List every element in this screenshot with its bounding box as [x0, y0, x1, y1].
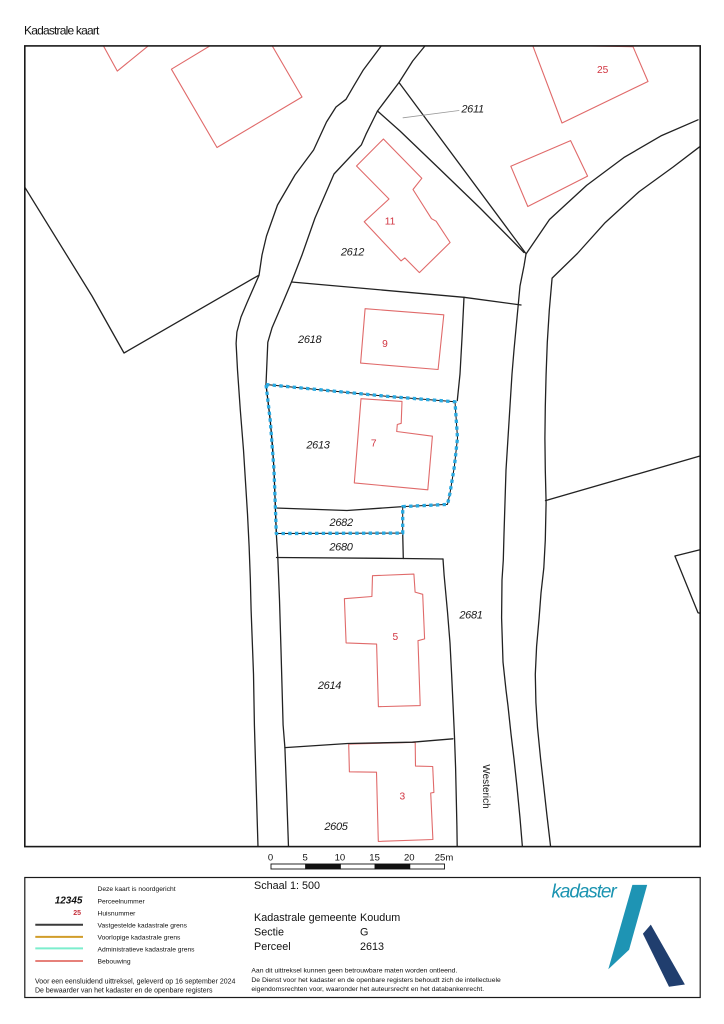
svg-text:9: 9: [382, 339, 388, 350]
svg-text:2680: 2680: [328, 542, 353, 554]
svg-text:2614: 2614: [317, 680, 341, 692]
svg-text:2682: 2682: [329, 517, 353, 529]
svg-text:Perceelnummer: Perceelnummer: [98, 898, 146, 905]
svg-text:2605: 2605: [323, 821, 348, 833]
svg-text:Kadastrale kaart: Kadastrale kaart: [24, 24, 100, 38]
svg-text:10: 10: [335, 853, 346, 864]
svg-text:Huisnummer: Huisnummer: [98, 910, 137, 917]
svg-text:2618: 2618: [297, 334, 322, 346]
svg-text:7: 7: [371, 439, 377, 450]
svg-text:Administratieve kadastrale gre: Administratieve kadastrale grens: [98, 946, 196, 953]
svg-text:Vastgestelde kadastrale grens: Vastgestelde kadastrale grens: [98, 922, 188, 929]
svg-text:Kadastrale gemeente: Kadastrale gemeente: [254, 912, 357, 924]
svg-text:2613: 2613: [305, 440, 330, 452]
svg-text:2681: 2681: [458, 610, 482, 622]
svg-text:25: 25: [73, 910, 81, 917]
svg-text:11: 11: [385, 217, 396, 228]
svg-text:G: G: [360, 927, 368, 939]
svg-text:3: 3: [399, 791, 405, 802]
svg-text:25: 25: [597, 65, 609, 76]
svg-text:20: 20: [404, 853, 415, 864]
svg-text:Schaal 1: 500: Schaal 1: 500: [254, 880, 320, 892]
svg-text:Deze kaart is noordgericht: Deze kaart is noordgericht: [98, 886, 176, 893]
svg-text:Westerich: Westerich: [480, 764, 491, 808]
svg-text:12345: 12345: [55, 895, 83, 906]
svg-text:Aan dit uittreksel kunnen geen: Aan dit uittreksel kunnen geen betrouwba…: [251, 968, 457, 975]
svg-text:Perceel: Perceel: [254, 941, 291, 953]
svg-text:Voor een eensluidend uittrekse: Voor een eensluidend uittreksel, gelever…: [35, 979, 236, 986]
svg-text:0: 0: [268, 853, 273, 864]
svg-text:25m: 25m: [435, 853, 454, 864]
svg-text:De bewaarder van het kadaster: De bewaarder van het kadaster en de open…: [35, 988, 213, 995]
svg-text:De Dienst voor het kadaster en: De Dienst voor het kadaster en de openba…: [251, 977, 501, 984]
svg-text:2613: 2613: [360, 941, 384, 953]
svg-text:5: 5: [303, 853, 308, 864]
svg-text:15: 15: [369, 853, 380, 864]
svg-text:2611: 2611: [460, 104, 484, 116]
svg-text:Sectie: Sectie: [254, 927, 284, 939]
svg-text:Bebouwing: Bebouwing: [98, 958, 131, 965]
svg-text:eigendomsrechten voor, waarond: eigendomsrechten voor, waaronder het aut…: [251, 986, 484, 993]
svg-text:Voorlopige kadastrale grens: Voorlopige kadastrale grens: [98, 934, 182, 941]
svg-text:Koudum: Koudum: [360, 912, 400, 924]
svg-text:5: 5: [392, 632, 398, 643]
svg-text:2612: 2612: [340, 247, 364, 259]
svg-text:kadaster: kadaster: [552, 882, 618, 903]
